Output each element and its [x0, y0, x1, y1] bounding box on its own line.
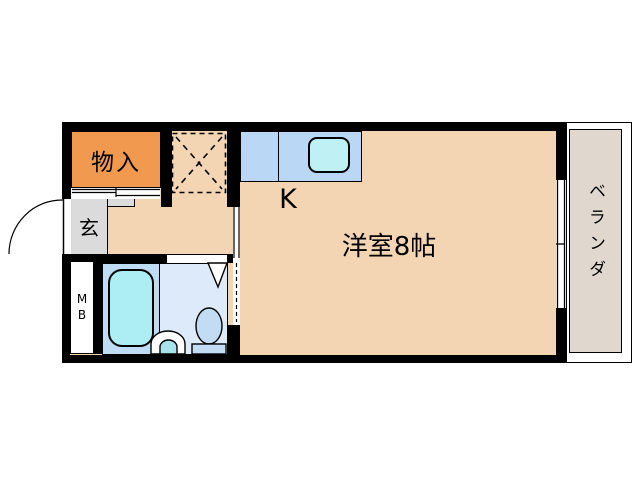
- kitchen-label: K: [268, 184, 308, 215]
- wall-top: [62, 122, 566, 131]
- wall: [227, 131, 240, 207]
- entry-door-icon: [9, 199, 64, 254]
- wall-left: [62, 122, 71, 199]
- wall-bottom: [62, 355, 566, 363]
- wall-left: [62, 254, 70, 363]
- main-room-label: 洋室8帖: [309, 226, 469, 263]
- closet-sliding-door: [71, 188, 160, 199]
- entrance-step: [108, 199, 135, 207]
- entrance-area: 玄: [71, 199, 108, 254]
- kitchen-room-partition: [233, 207, 240, 325]
- storage-room: 物入: [71, 131, 161, 188]
- wall: [161, 131, 172, 207]
- meter-box-label: MB: [75, 292, 89, 324]
- veranda-label: ベランダ: [583, 130, 608, 352]
- kitchen-counter-divider: [278, 131, 279, 182]
- veranda: ベランダ: [569, 129, 622, 353]
- kitchen-sink: [308, 137, 350, 173]
- wall-right: [556, 131, 566, 180]
- entrance-label: 玄: [79, 212, 99, 241]
- wall: [227, 325, 240, 355]
- bathroom-door-opening: [167, 255, 227, 263]
- wall-right: [556, 308, 566, 355]
- meter-box: MB: [70, 261, 94, 354]
- balcony-window: [556, 180, 566, 308]
- bathtub: [108, 269, 154, 347]
- storage-room-label: 物入: [91, 143, 141, 177]
- floor-plan: 物入 玄 MB ベランダ K 洋室8帖: [0, 0, 638, 480]
